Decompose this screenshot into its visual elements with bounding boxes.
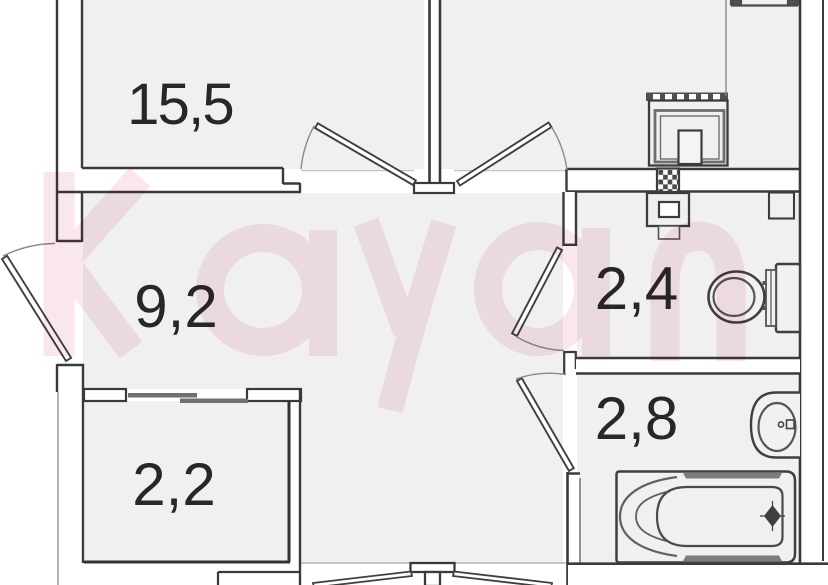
svg-text:9,2: 9,2: [134, 273, 217, 340]
svg-text:2,2: 2,2: [132, 451, 215, 518]
svg-text:15,5: 15,5: [127, 72, 233, 137]
svg-text:2,8: 2,8: [595, 385, 678, 452]
svg-text:2,4: 2,4: [595, 255, 678, 322]
